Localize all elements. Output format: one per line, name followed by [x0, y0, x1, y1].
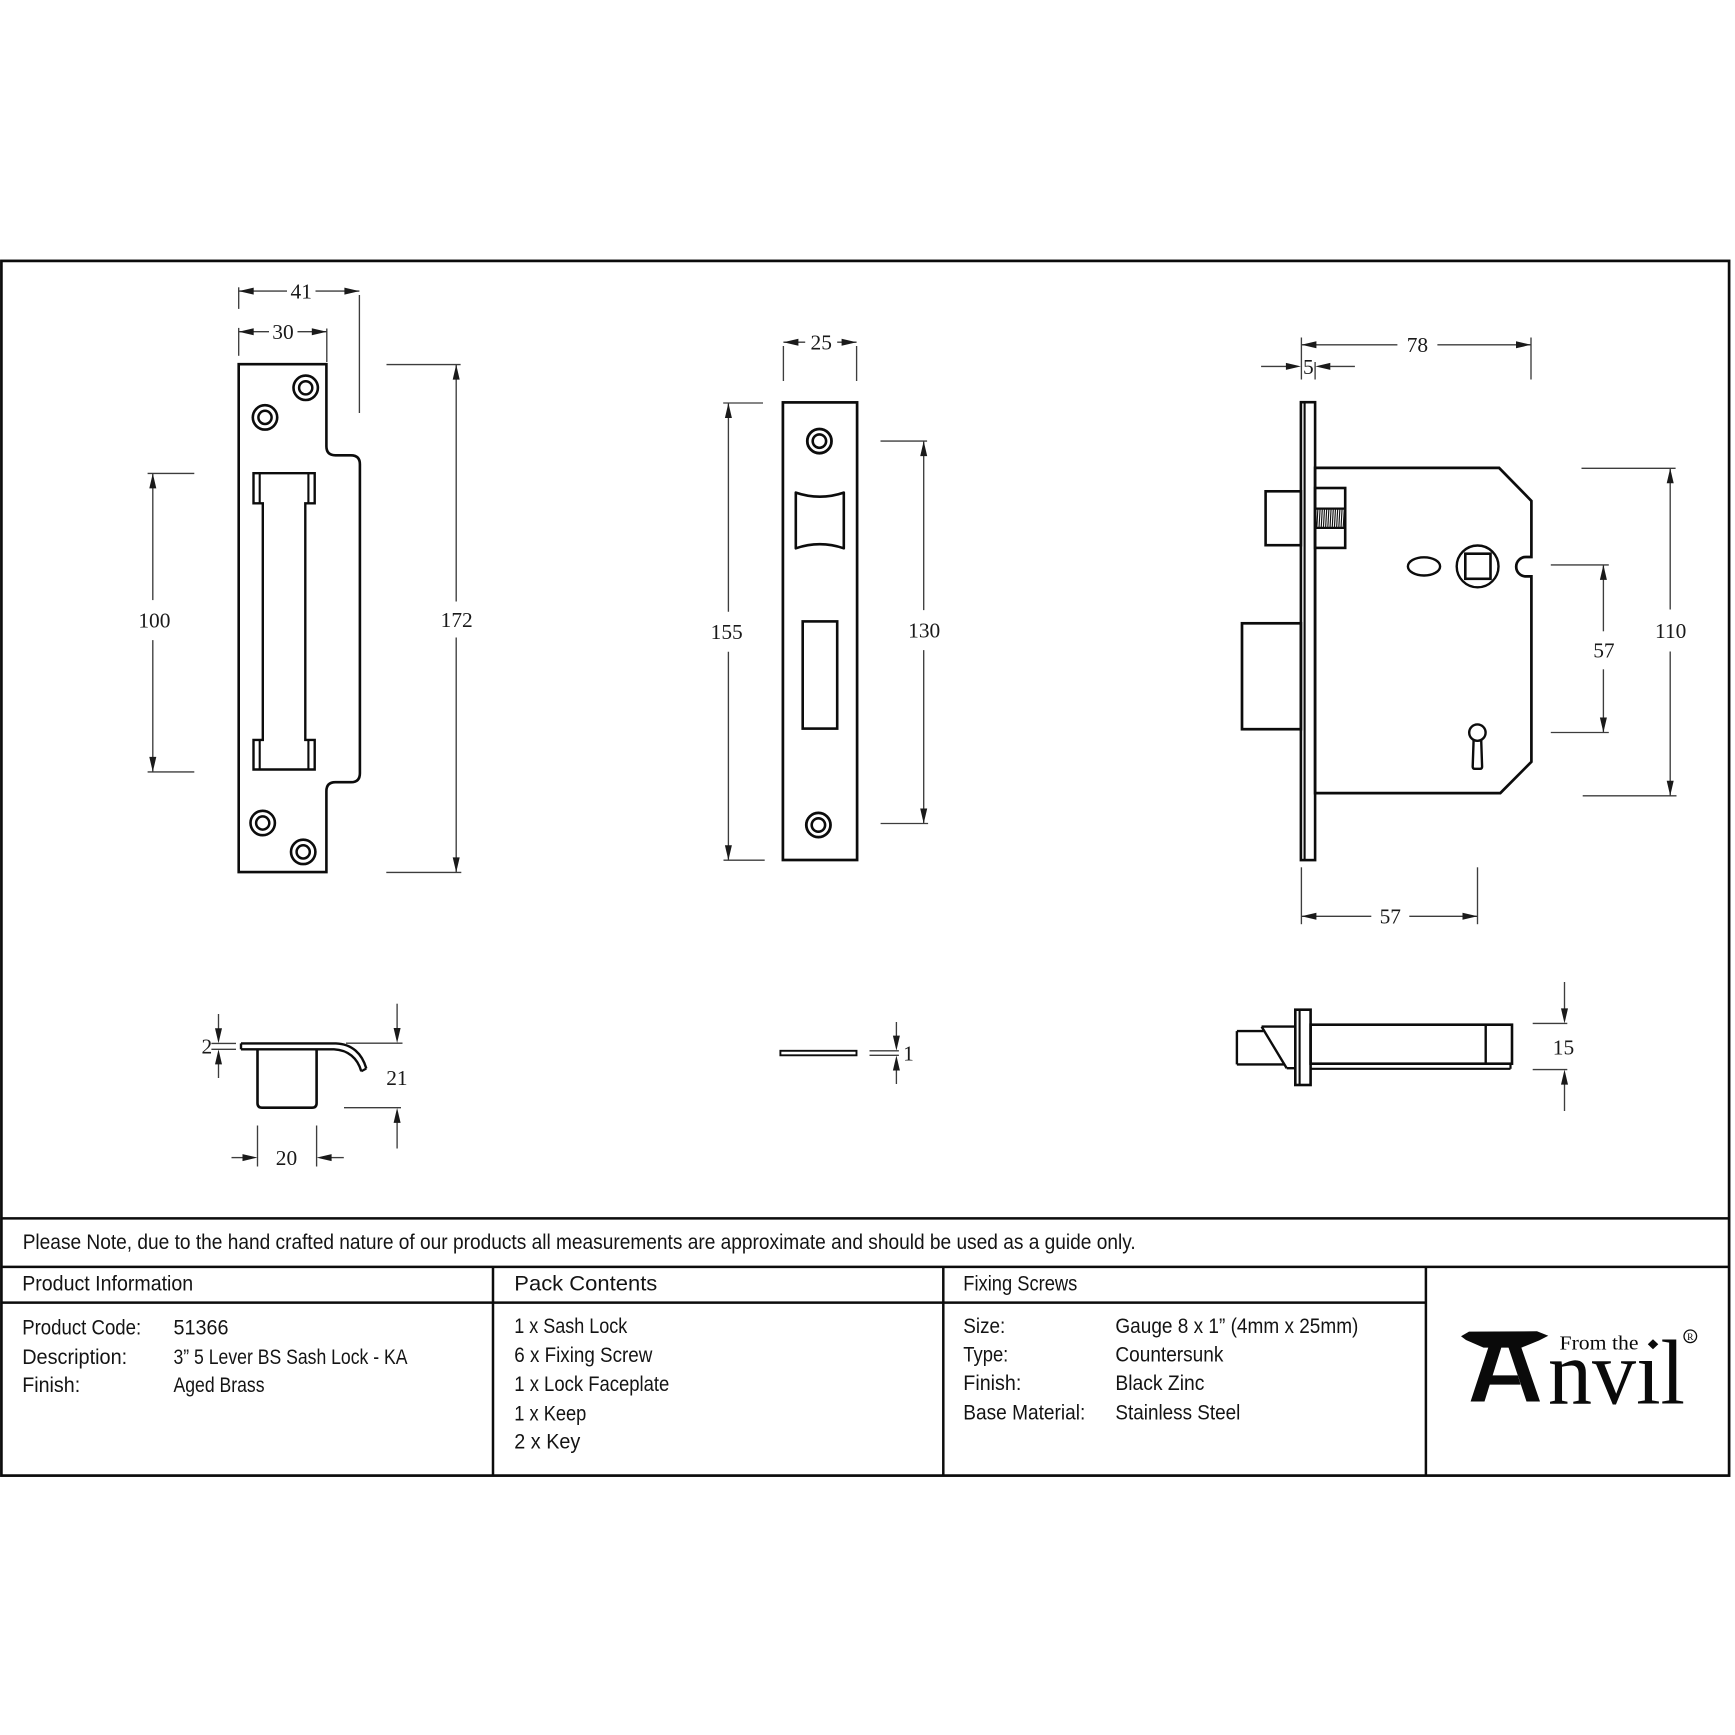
- svg-text:Countersunk: Countersunk: [1115, 1344, 1223, 1367]
- svg-text:100: 100: [138, 608, 170, 632]
- svg-text:155: 155: [711, 620, 743, 644]
- svg-text:Pack Contents: Pack Contents: [514, 1273, 657, 1296]
- svg-text:nvıl: nvıl: [1548, 1322, 1685, 1424]
- svg-text:2 x Key: 2 x Key: [514, 1431, 580, 1454]
- svg-text:41: 41: [291, 279, 312, 303]
- svg-text:Black Zinc: Black Zinc: [1115, 1372, 1204, 1395]
- svg-text:5: 5: [1303, 355, 1314, 379]
- svg-text:Gauge 8 x 1” (4mm x 25mm): Gauge 8 x 1” (4mm x 25mm): [1115, 1315, 1358, 1338]
- svg-text:15: 15: [1553, 1035, 1574, 1059]
- svg-text:Product Information: Product Information: [22, 1273, 193, 1296]
- svg-text:Finish:: Finish:: [22, 1374, 80, 1397]
- svg-text:Finish:: Finish:: [963, 1372, 1021, 1395]
- svg-text:Base Material:: Base Material:: [963, 1401, 1085, 1424]
- svg-text:1 x Keep: 1 x Keep: [514, 1402, 586, 1425]
- svg-text:1 x Lock Faceplate: 1 x Lock Faceplate: [514, 1373, 669, 1396]
- svg-text:Size:: Size:: [963, 1315, 1005, 1338]
- svg-text:57: 57: [1380, 905, 1402, 929]
- svg-text:Product Code:: Product Code:: [22, 1316, 141, 1339]
- svg-text:R: R: [1687, 1333, 1694, 1343]
- svg-text:21: 21: [386, 1066, 407, 1090]
- svg-text:30: 30: [272, 320, 293, 344]
- svg-text:130: 130: [908, 618, 940, 642]
- svg-text:51366: 51366: [174, 1316, 229, 1339]
- svg-text:78: 78: [1407, 333, 1428, 357]
- svg-text:Fixing Screws: Fixing Screws: [963, 1273, 1077, 1296]
- svg-text:110: 110: [1655, 619, 1686, 643]
- svg-text:20: 20: [276, 1146, 297, 1170]
- svg-text:1: 1: [903, 1041, 914, 1065]
- svg-text:57: 57: [1593, 639, 1615, 663]
- svg-text:25: 25: [811, 331, 832, 355]
- svg-text:Stainless Steel: Stainless Steel: [1115, 1401, 1240, 1424]
- svg-text:3” 5 Lever BS Sash Lock - KA: 3” 5 Lever BS Sash Lock - KA: [174, 1346, 408, 1369]
- svg-text:Description:: Description:: [22, 1346, 127, 1369]
- svg-text:Type:: Type:: [963, 1344, 1008, 1367]
- svg-text:Please Note, due to the hand c: Please Note, due to the hand crafted nat…: [23, 1231, 1136, 1254]
- svg-text:6 x Fixing Screw: 6 x Fixing Screw: [514, 1344, 653, 1367]
- svg-text:Aged Brass: Aged Brass: [174, 1374, 265, 1397]
- svg-text:172: 172: [441, 608, 473, 632]
- svg-text:1 x Sash Lock: 1 x Sash Lock: [514, 1315, 627, 1338]
- svg-text:2: 2: [202, 1035, 213, 1059]
